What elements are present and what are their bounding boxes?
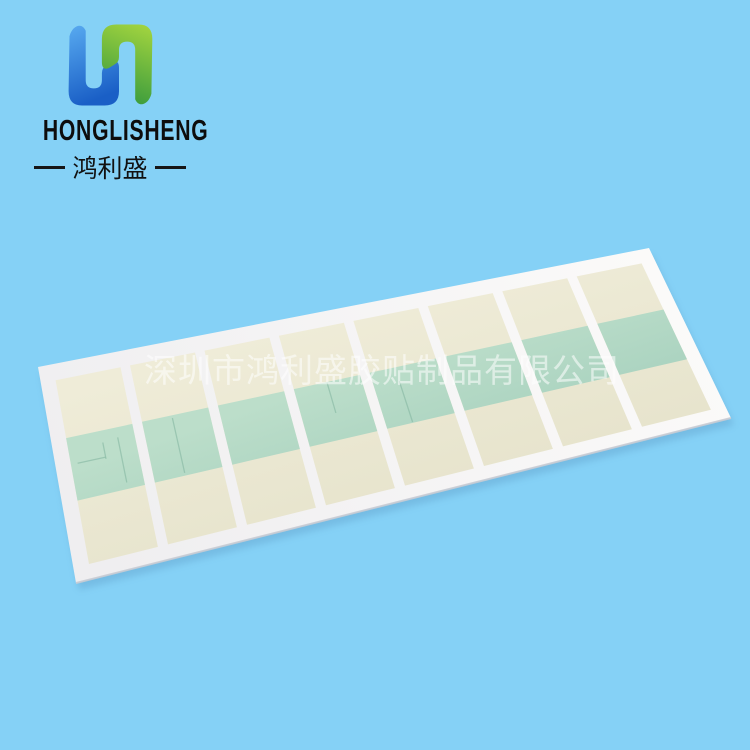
dash-left — [34, 166, 65, 169]
brand-name-cn-row: 鸿利盛 — [18, 149, 202, 185]
brand-block: HONGLISHENG 鸿利盛 — [18, 20, 202, 185]
brand-name-cn: 鸿利盛 — [72, 149, 147, 185]
brand-name-en: HONGLISHENG — [43, 115, 177, 148]
honglisheng-logo — [64, 20, 156, 110]
dash-right — [155, 166, 186, 169]
product-photo: 深圳市鸿利盛胶贴制品有限公司 HONGLISHENG 鸿利盛 — [0, 0, 750, 750]
watermark-text: 深圳市鸿利盛胶贴制品有限公司 — [144, 344, 620, 392]
